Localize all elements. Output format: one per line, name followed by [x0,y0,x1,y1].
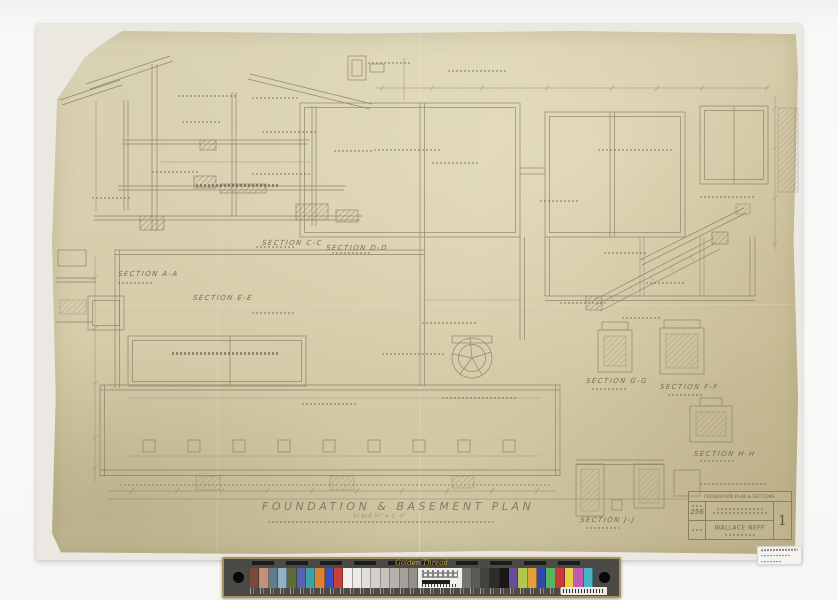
section-label: SECTION G-G [585,377,648,385]
color-patch [306,568,315,588]
pencil-note-scribble [374,149,440,151]
color-patch [362,568,371,588]
pencil-note-scribble [182,121,222,123]
pencil-note-scribble [586,527,620,529]
pencil-note-scribble [252,173,310,175]
pencil-note-scribble [442,397,518,399]
pencil-note-scribble [646,282,686,284]
pencil-note-scribble [92,197,130,199]
color-patch [518,568,527,588]
pencil-note-scribble [448,70,506,72]
section-label: SECTION D-D [325,244,388,252]
color-patch [481,568,490,588]
sheet-number: 1 [774,502,791,539]
title-block-scribble [692,505,702,507]
color-patch [574,568,583,588]
pencil-note-scribble [332,252,370,254]
patch-group-right [462,568,593,588]
pencil-note-scribble [178,95,236,97]
section-label: SECTION C-C [261,239,323,247]
pencil-note-scribble [604,252,648,254]
sticker-text-line [761,549,798,551]
architect-name: WALLACE NEFF [714,524,764,531]
pencil-note-scribble [302,403,358,405]
resolution-target [418,568,462,588]
pencil-note-scribble [152,171,200,173]
color-patch [400,568,409,588]
color-patch [325,568,334,588]
dimension-numbers-scribble [120,484,550,486]
color-patch [472,568,481,588]
job-number: 256 [690,509,703,516]
color-patch [390,568,399,588]
pencil-note-scribble [252,97,298,99]
sheet-scale-note: SCALE ¼" = 1'-0" [330,513,429,519]
color-patch [537,568,546,588]
color-patch [546,568,555,588]
pencil-note-scribble [700,460,734,462]
sticker-text-line [761,555,791,557]
pencil-note-scribble [598,149,672,151]
color-patch [462,568,471,588]
color-patch [565,568,574,588]
mount-hole-icon [599,572,610,583]
pencil-note-scribble [334,150,374,152]
title-block-scribble [725,534,755,536]
pencil-note-scribble [622,317,662,319]
color-patch [269,568,278,588]
section-label: SECTION E-E [192,294,253,302]
color-patch-row [250,568,593,588]
sheet-title: FOUNDATION & BASEMENT PLAN [262,500,494,513]
color-patch [315,568,324,588]
color-patch [278,568,287,588]
color-calibration-bar: Golden Thread [222,557,621,598]
pencil-note-scribble [118,282,154,284]
title-block-grid: 256 WALLACE NEFF [689,502,774,539]
color-patch [584,568,593,588]
barcode-label [561,587,607,595]
pencil-note-scribble [172,352,280,355]
pencil-note-scribble [592,388,628,390]
archive-sticker [757,546,802,566]
section-label: SECTION J-J [579,516,635,524]
color-patch [259,568,268,588]
color-patch [509,568,518,588]
color-patch [381,568,390,588]
pencil-note-scribble [262,131,316,133]
color-bar-brand: Golden Thread [224,559,619,567]
patch-micro-labels [250,588,593,594]
section-label: SECTION F-F [659,383,719,391]
color-patch [500,568,509,588]
section-label: SECTION A-A [117,270,179,278]
general-note-scribble [268,521,494,523]
title-block-scribble [717,508,763,510]
color-patch [556,568,565,588]
scanned-document-stage: SECTION A-A SECTION E-E SECTION C-C SECT… [0,0,838,600]
color-patch [528,568,537,588]
color-patch [334,568,343,588]
pencil-note-scribble [560,302,606,304]
sticker-text-line [761,560,781,562]
pencil-note-scribble [252,312,294,314]
pencil-note-scribble [196,184,280,187]
resolution-chart-icon [422,570,458,578]
color-patch [371,568,380,588]
resolution-microtext [422,584,458,587]
title-block-scribble [692,529,702,531]
color-patch [353,568,362,588]
mount-hole-icon [233,572,244,583]
color-patch [297,568,306,588]
pencil-note-scribble [540,200,580,202]
color-patch [250,568,259,588]
color-patch [490,568,499,588]
title-block-scribble [713,512,767,514]
color-patch [409,568,418,588]
color-patch [287,568,296,588]
pencil-note-scribble [700,483,766,485]
pencil-note-scribble [368,62,412,64]
color-patch [343,568,352,588]
pencil-note-scribble [422,322,478,324]
title-block-header: FOUNDATION PLAN & SECTIONS [689,492,791,502]
section-label: SECTION H-H [693,450,756,458]
pencil-note-scribble [700,196,756,198]
title-block: FOUNDATION PLAN & SECTIONS 256 WALLACE N… [688,491,792,540]
pencil-note-scribble [432,162,480,164]
barcode-icon [563,589,605,593]
patch-group-left [250,568,418,588]
pencil-note-scribble [668,394,702,396]
pencil-note-scribble [382,353,446,355]
